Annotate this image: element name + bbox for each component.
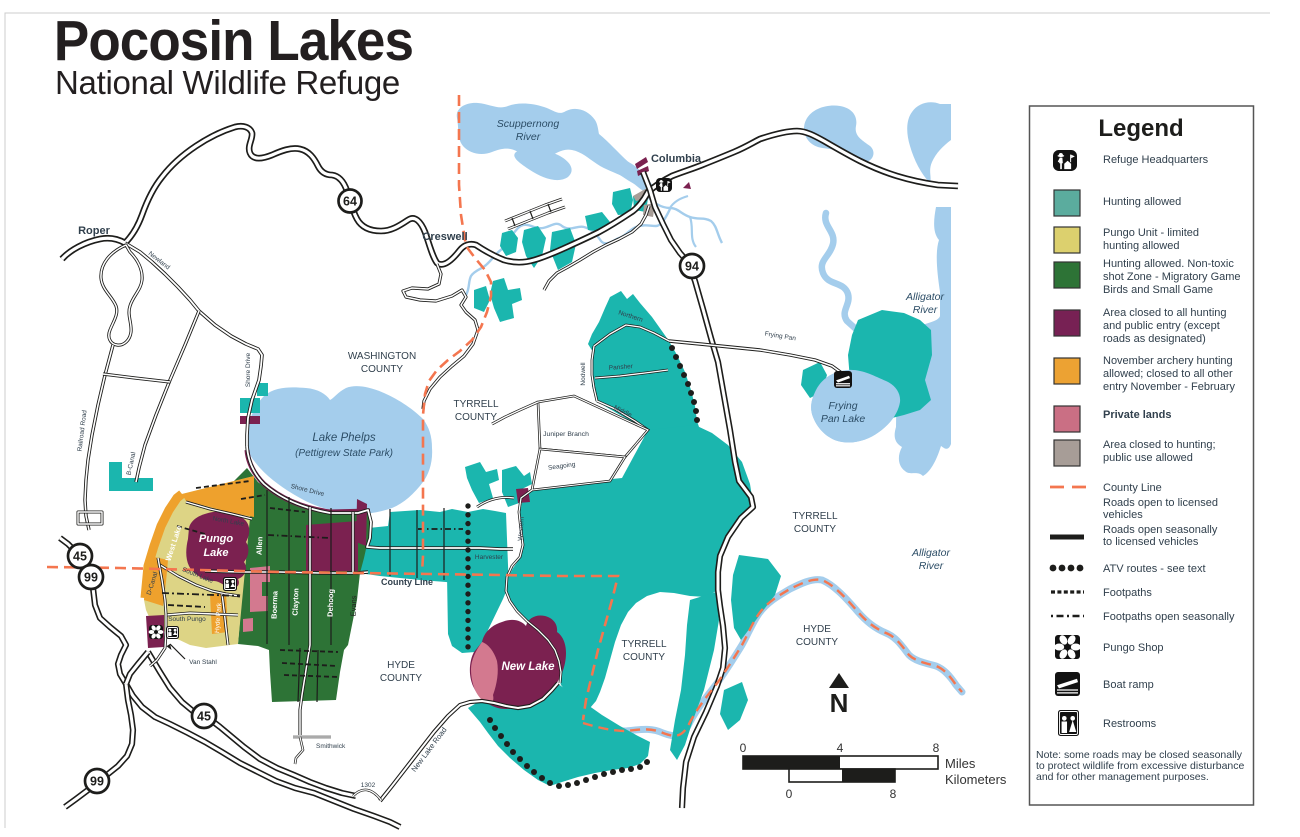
svg-text:Pungo: Pungo: [199, 533, 233, 545]
svg-text:Alligator: Alligator: [905, 291, 944, 303]
svg-text:COUNTY: COUNTY: [623, 652, 666, 663]
svg-text:99: 99: [90, 775, 104, 789]
svg-text:Private lands: Private lands: [1103, 409, 1171, 421]
svg-text:Birds and Small Game: Birds and Small Game: [1103, 284, 1213, 296]
svg-text:roads as designated): roads as designated): [1103, 333, 1206, 345]
svg-text:Area closed to all hunting: Area closed to all hunting: [1103, 307, 1227, 319]
svg-text:Frying: Frying: [828, 400, 857, 412]
svg-text:Area closed to hunting;: Area closed to hunting;: [1103, 439, 1216, 451]
svg-text:hunting allowed: hunting allowed: [1103, 240, 1179, 252]
svg-text:Pungo Unit - limited: Pungo Unit - limited: [1103, 227, 1199, 239]
svg-text:Evans: Evans: [349, 595, 359, 616]
svg-text:to licensed vehicles: to licensed vehicles: [1103, 536, 1199, 548]
svg-text:Harvester: Harvester: [475, 554, 504, 561]
svg-text:99: 99: [84, 571, 98, 585]
svg-text:River: River: [516, 131, 541, 143]
svg-text:Lake Phelps: Lake Phelps: [312, 432, 376, 444]
svg-text:COUNTY: COUNTY: [796, 637, 839, 648]
svg-text:allowed; closed to all other: allowed; closed to all other: [1103, 368, 1233, 380]
svg-text:Scuppernong: Scuppernong: [497, 118, 560, 130]
svg-text:River: River: [919, 560, 944, 572]
svg-text:Hunting allowed. Non-toxic: Hunting allowed. Non-toxic: [1103, 258, 1234, 270]
svg-text:Legend: Legend: [1098, 115, 1183, 142]
svg-text:Alligator: Alligator: [911, 547, 950, 559]
svg-text:COUNTY: COUNTY: [361, 364, 404, 375]
svg-text:Miles: Miles: [945, 756, 976, 771]
svg-text:8: 8: [933, 741, 940, 755]
svg-text:vehicles: vehicles: [1103, 509, 1143, 521]
svg-text:public use allowed: public use allowed: [1103, 452, 1193, 464]
svg-text:National Wildlife Refuge: National Wildlife Refuge: [55, 64, 400, 101]
svg-text:Shore Drive: Shore Drive: [245, 352, 252, 387]
svg-text:River: River: [913, 304, 938, 316]
svg-text:ATV routes - see text: ATV routes - see text: [1103, 563, 1206, 575]
svg-text:Hunting allowed: Hunting allowed: [1103, 196, 1181, 208]
svg-text:Footpaths open seasonally: Footpaths open seasonally: [1103, 611, 1235, 623]
svg-text:and for other management purpo: and for other management purposes.: [1036, 771, 1209, 783]
svg-text:Pocosin Lakes: Pocosin Lakes: [54, 8, 413, 72]
svg-text:Van Stahl: Van Stahl: [189, 659, 217, 666]
svg-text:COUNTY: COUNTY: [380, 673, 423, 684]
svg-text:Refuge Headquarters: Refuge Headquarters: [1103, 154, 1209, 166]
svg-text:Lake: Lake: [203, 547, 228, 559]
svg-text:Pan Lake: Pan Lake: [821, 413, 866, 425]
svg-text:Allen: Allen: [255, 536, 265, 555]
svg-text:Clayton: Clayton: [291, 588, 301, 616]
svg-text:Pungo Shop: Pungo Shop: [1103, 642, 1164, 654]
svg-text:and public entry (except: and public entry (except: [1103, 320, 1220, 332]
svg-text:Kilometers: Kilometers: [945, 772, 1007, 787]
svg-text:Columbia: Columbia: [651, 153, 702, 165]
svg-text:Footpaths: Footpaths: [1103, 587, 1152, 599]
svg-text:94: 94: [685, 260, 699, 274]
svg-text:TYRRELL: TYRRELL: [621, 639, 666, 650]
svg-text:HYDE: HYDE: [803, 624, 831, 635]
svg-text:64: 64: [343, 195, 357, 209]
svg-text:Creswell: Creswell: [422, 231, 467, 243]
svg-text:0: 0: [740, 741, 747, 755]
svg-text:Boat ramp: Boat ramp: [1103, 679, 1154, 691]
svg-text:County Line: County Line: [1103, 482, 1162, 494]
svg-text:0: 0: [786, 787, 793, 801]
svg-text:4: 4: [837, 741, 844, 755]
svg-text:HYDE: HYDE: [387, 660, 415, 671]
svg-text:Roper: Roper: [78, 225, 111, 237]
svg-text:TYRRELL: TYRRELL: [792, 511, 837, 522]
svg-text:(Pettigrew State Park): (Pettigrew State Park): [295, 448, 393, 459]
svg-text:Juniper Branch: Juniper Branch: [543, 431, 589, 438]
svg-text:South Pungo: South Pungo: [168, 616, 206, 623]
svg-text:Boerma: Boerma: [270, 590, 280, 619]
svg-text:TYRRELL: TYRRELL: [453, 399, 498, 410]
svg-text:Restrooms: Restrooms: [1103, 718, 1157, 730]
svg-text:N: N: [830, 688, 849, 718]
svg-text:Roads open seasonally: Roads open seasonally: [1103, 524, 1218, 536]
svg-text:1302: 1302: [361, 782, 376, 789]
svg-text:45: 45: [73, 550, 87, 564]
svg-text:entry November - February: entry November - February: [1103, 381, 1236, 393]
svg-text:COUNTY: COUNTY: [455, 412, 498, 423]
svg-text:COUNTY: COUNTY: [794, 524, 837, 535]
svg-text:Roads open to licensed: Roads open to licensed: [1103, 497, 1218, 509]
svg-text:45: 45: [197, 710, 211, 724]
svg-text:November archery hunting: November archery hunting: [1103, 355, 1233, 367]
svg-text:Nodwell: Nodwell: [580, 362, 587, 386]
svg-text:Dehoog: Dehoog: [326, 588, 336, 617]
svg-text:8: 8: [890, 787, 897, 801]
svg-text:New Lake: New Lake: [501, 661, 555, 673]
svg-text:WASHINGTON: WASHINGTON: [348, 351, 416, 362]
svg-text:shot Zone - Migratory Game: shot Zone - Migratory Game: [1103, 271, 1241, 283]
svg-text:Smithwick: Smithwick: [316, 743, 346, 750]
svg-text:County Line: County Line: [381, 577, 433, 587]
